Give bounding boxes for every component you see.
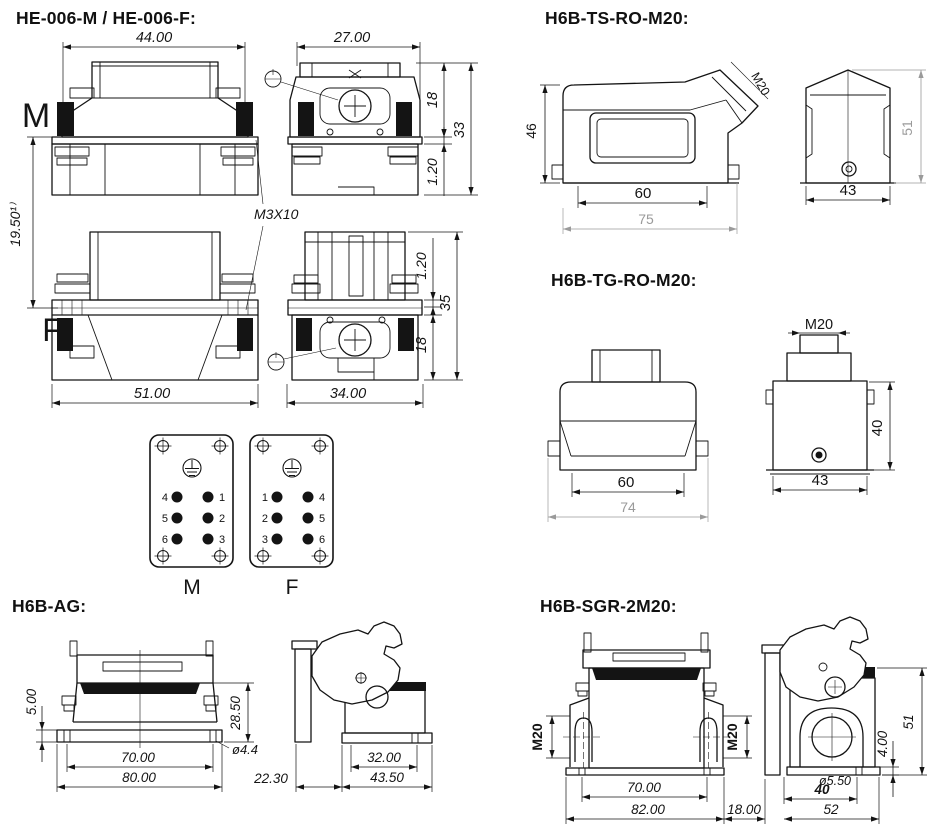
- pin-contact: [203, 534, 214, 545]
- dim-arrow: [882, 197, 890, 202]
- foot-right: [728, 165, 739, 179]
- screw-boss: [842, 162, 856, 176]
- dim-arrow: [700, 514, 708, 519]
- dim-arrow: [39, 722, 44, 730]
- dim-arrow: [454, 232, 459, 240]
- dim-w51: 51.00: [52, 384, 258, 408]
- screw-hole: [816, 452, 823, 459]
- m20-stub: [800, 335, 838, 353]
- body-legs: [88, 315, 222, 380]
- label-2: 3: [262, 534, 268, 546]
- dim-arrow: [744, 716, 749, 724]
- target-cross: [212, 548, 229, 565]
- label-h18_bot: 18: [414, 337, 430, 353]
- he006-m-side-view: [265, 63, 422, 195]
- side-screws: [576, 683, 716, 696]
- top-cap: [300, 63, 400, 77]
- dim-w70: 70.00: [582, 777, 707, 802]
- dim-arrow: [441, 63, 446, 71]
- base-holes: [856, 767, 862, 775]
- target-cross: [255, 548, 272, 565]
- hood-outline: [563, 70, 758, 183]
- dim-arrow: [351, 764, 359, 769]
- label-dia44: ø4.4: [232, 742, 258, 757]
- dim-arrow: [578, 200, 586, 205]
- label-h5: 5.00: [24, 688, 39, 715]
- label-0: 1: [219, 492, 225, 504]
- top-pins: [584, 633, 708, 652]
- dim-h18_top: 18: [416, 63, 478, 137]
- dim-arrow: [582, 794, 590, 799]
- flange: [342, 733, 432, 743]
- hood-inner: [98, 232, 212, 300]
- dim-arrow: [744, 750, 749, 758]
- dim-arrow: [676, 489, 684, 494]
- label-h51: 51: [899, 120, 915, 136]
- label-m20_right: M20: [724, 723, 740, 750]
- base-flange: [566, 768, 724, 775]
- pin-contact: [172, 513, 183, 524]
- top-pins: [70, 641, 213, 656]
- label-v1950: 19.50¹⁾: [7, 202, 23, 247]
- screw-slot: [344, 95, 366, 117]
- dim-arrow: [890, 775, 895, 783]
- label-h40: 40: [869, 420, 886, 437]
- dim-h40: 40: [869, 382, 895, 470]
- ground-symbol-icon: [183, 459, 201, 477]
- dim-arrow: [30, 137, 35, 145]
- dim-arrow: [250, 400, 258, 405]
- dim-arrow: [412, 44, 420, 49]
- dim-arrow: [454, 372, 459, 380]
- dim-w43: 43: [806, 182, 890, 205]
- dim-arrow: [542, 85, 547, 93]
- label-1: 2: [262, 513, 268, 525]
- dim-arrow: [441, 144, 446, 152]
- m3x10-leader-lower: [246, 226, 263, 310]
- dim-arrow: [237, 44, 245, 49]
- dim-arrow: [214, 784, 222, 789]
- side-tab-left: [70, 88, 94, 98]
- dim-arrow: [784, 796, 792, 801]
- threaded-stud-left: [298, 102, 314, 136]
- target-cross: [155, 548, 172, 565]
- dim-arrow: [887, 462, 892, 470]
- dim-arrow: [245, 683, 250, 691]
- label-w74: 74: [620, 499, 636, 515]
- ts-side-view: [552, 70, 758, 183]
- sgr-side-view: [762, 617, 880, 775]
- rivet-right: [377, 129, 383, 135]
- pin-contact: [203, 513, 214, 524]
- lower-block: [338, 358, 374, 380]
- dim-h5: 5.00: [24, 688, 59, 762]
- label-h120_top: 1.20: [424, 158, 440, 185]
- top-body: [77, 655, 213, 683]
- dim-arrow: [409, 764, 417, 769]
- label-h51: 51: [901, 714, 916, 729]
- pin-contact: [203, 492, 214, 503]
- dim-h46: 46: [523, 85, 560, 183]
- pin-contact: [303, 492, 314, 503]
- dim-arrow: [296, 784, 304, 789]
- foot-left: [552, 165, 563, 179]
- label-view_label_m: M: [22, 97, 50, 135]
- flange: [57, 730, 222, 742]
- dim-arrow: [716, 816, 724, 821]
- window-inner: [597, 119, 688, 157]
- flange: [288, 137, 422, 144]
- pin-contact: [272, 513, 283, 524]
- foot-left: [548, 441, 560, 456]
- dim-arrow: [724, 816, 732, 821]
- collar: [787, 353, 851, 381]
- ag-front-view: [57, 641, 222, 748]
- side-tab-left: [70, 346, 94, 358]
- label-h46: 46: [523, 123, 539, 139]
- leader-lines: [216, 62, 768, 748]
- screw-heads: [55, 274, 255, 293]
- ground-glyph: [285, 460, 299, 476]
- ground-leader-m: [281, 82, 338, 100]
- side-tab-right: [216, 346, 240, 358]
- gasket: [80, 683, 200, 694]
- dim-arrow: [784, 816, 792, 821]
- corner-target-icon: [212, 548, 229, 565]
- dim-arrow: [549, 716, 554, 724]
- label-w70: 70.00: [121, 750, 155, 765]
- dim-w60: 60: [572, 473, 684, 497]
- technical-drawing-svg: 44.0027.0018331.2019.50¹⁾51.0034.001.203…: [0, 0, 943, 839]
- flange: [288, 300, 422, 315]
- body-outline: [560, 382, 696, 470]
- corner-target-icon: [312, 438, 329, 455]
- threaded-stud-left: [57, 102, 74, 136]
- ground-symbol-icon: [283, 459, 301, 477]
- body-lower: [52, 144, 258, 195]
- foot-right: [696, 441, 708, 456]
- dim-arrow: [729, 226, 737, 231]
- ground-screw-slot: [268, 352, 284, 362]
- dim-arrow: [890, 759, 895, 767]
- dim-arrow: [542, 175, 547, 183]
- dim-arrow: [859, 487, 867, 492]
- dim-arrow: [699, 200, 707, 205]
- dim-arrow: [441, 129, 446, 137]
- label-w70: 70.00: [627, 780, 661, 795]
- pin-contact: [272, 492, 283, 503]
- target-cross: [312, 548, 329, 565]
- label-w52: 52: [823, 802, 839, 817]
- label-2: 3: [219, 534, 225, 546]
- stub-inner: [600, 350, 652, 382]
- dim-arrow: [572, 489, 580, 494]
- label-w435: 43.50: [370, 770, 404, 785]
- label-h285: 28.50: [228, 696, 243, 731]
- label-w60: 60: [635, 185, 652, 202]
- body-ribs: [70, 144, 235, 195]
- dim-thread: M20: [788, 317, 850, 350]
- post-cap: [292, 641, 317, 649]
- he006-m-front-view: [52, 62, 258, 195]
- label-h18_top: 18: [425, 92, 441, 108]
- label-w60: 60: [618, 474, 635, 491]
- dim-arrow: [919, 668, 924, 676]
- dim-arrow: [468, 63, 473, 71]
- dim-arrow: [415, 400, 423, 405]
- pin-contact: [303, 534, 314, 545]
- flange-ribs: [52, 300, 258, 315]
- bottom-notch: [338, 187, 374, 195]
- dim-arrow: [806, 197, 814, 202]
- dim-arrow: [887, 382, 892, 390]
- label-h4: 4.00: [875, 730, 890, 757]
- hole-crosshair: [808, 713, 856, 761]
- dim-arrow: [773, 487, 781, 492]
- label-f_label: F: [286, 576, 299, 599]
- dim-w70: 70.00: [67, 744, 213, 772]
- locking-lever: [312, 622, 402, 704]
- dim-m20_right: M20: [723, 716, 752, 758]
- dim-arrow: [757, 816, 765, 821]
- label-m_label: M: [183, 576, 201, 599]
- dim-arrow: [342, 784, 350, 789]
- label-1: 5: [162, 513, 168, 525]
- label-w51: 51.00: [134, 386, 170, 402]
- top-stub: [592, 350, 660, 382]
- label-gap18: 18.00: [727, 802, 761, 817]
- dim-arrow: [67, 764, 75, 769]
- threaded-stud-right: [236, 102, 253, 136]
- corner-target-icon: [312, 548, 329, 565]
- label-w2230: 22.30: [253, 771, 288, 786]
- dim-arrow: [918, 175, 923, 183]
- top-inner: [103, 662, 182, 671]
- dim-arrow: [549, 750, 554, 758]
- dim-arrow: [205, 764, 213, 769]
- dim-w34: 34.00: [287, 384, 423, 408]
- label-0: 1: [262, 492, 268, 504]
- gasket: [592, 668, 701, 680]
- label-w80: 80.00: [122, 770, 156, 785]
- dim-h4: 4.00: [875, 730, 899, 797]
- locking-lever: [780, 617, 868, 701]
- dim-w2230: 22.30: [253, 744, 342, 792]
- label-thread: M3X10: [254, 206, 299, 222]
- hood-outline: [90, 232, 220, 300]
- label-h33: 33: [452, 122, 468, 138]
- body: [589, 668, 704, 768]
- label-w44: 44.00: [136, 30, 172, 46]
- center-slot: [349, 236, 363, 296]
- window-outer: [590, 113, 695, 163]
- dim-arrow: [430, 307, 435, 315]
- dim-arrow: [57, 784, 65, 789]
- dim-h120_top: 1.20: [424, 127, 452, 196]
- tg-end-view: [766, 335, 874, 474]
- m20-domes: [575, 718, 717, 762]
- hood-outline: [62, 62, 248, 137]
- label-1: 2: [219, 513, 225, 525]
- label-2: 6: [319, 534, 325, 546]
- screw-heads: [292, 275, 418, 293]
- ag-side-view: [292, 622, 432, 743]
- label-w43: 43: [840, 182, 857, 199]
- drawing-sheet: { "sections": { "he006": { "title": "HE-…: [0, 0, 943, 839]
- label-w34: 34.00: [330, 386, 366, 402]
- dim-arrow: [430, 315, 435, 323]
- base-holes: [579, 768, 710, 775]
- dim-w60: 60: [578, 185, 707, 208]
- dim-arrow: [52, 400, 60, 405]
- threaded-stud-right: [398, 318, 414, 351]
- dim-arrow: [297, 44, 305, 49]
- dim-arrow: [838, 330, 846, 335]
- dim-arrow: [699, 794, 707, 799]
- dim-arrow: [30, 300, 35, 308]
- flange: [52, 300, 258, 315]
- pin-contact: [172, 492, 183, 503]
- ground-screw-slot: [265, 69, 281, 79]
- ground-glyph: [185, 460, 199, 476]
- dim-arrow: [39, 742, 44, 750]
- label-w32: 32.00: [367, 750, 401, 765]
- corner-target-icon: [155, 438, 172, 455]
- label-view_label_f: F: [42, 312, 62, 348]
- target-cross: [312, 438, 329, 455]
- pin-contact: [272, 534, 283, 545]
- label-w27: 27.00: [333, 30, 370, 46]
- side-tab-right: [216, 88, 240, 98]
- dim-arrow: [871, 816, 879, 821]
- rivet-left: [327, 129, 333, 135]
- pin-contact: [172, 534, 183, 545]
- screw-slot: [344, 329, 366, 351]
- dim-arrow: [566, 816, 574, 821]
- hood-inner-lines: [92, 62, 218, 98]
- screw-heads: [292, 147, 418, 164]
- tg-front-view: [548, 350, 708, 470]
- ear-right: [867, 390, 874, 404]
- dome-centerlines: [563, 712, 730, 768]
- label-h35: 35: [438, 294, 454, 311]
- dim-arrow: [424, 784, 432, 789]
- sgr-front-view: [563, 633, 730, 775]
- label-w82: 82.00: [631, 802, 665, 817]
- corner-target-icon: [255, 548, 272, 565]
- dim-arrow: [918, 70, 923, 78]
- label-w43: 43: [812, 472, 829, 489]
- body-outline: [52, 315, 258, 380]
- label-0: 4: [162, 492, 168, 504]
- corner-target-icon: [255, 438, 272, 455]
- screw-heads: [55, 147, 255, 165]
- window-lines: [560, 421, 696, 456]
- dim-arrow: [287, 400, 295, 405]
- dim-arrow: [245, 734, 250, 742]
- dim-arrow: [563, 226, 571, 231]
- mount-post: [765, 653, 780, 775]
- threaded-stud-right: [396, 102, 412, 136]
- dim-arrow: [468, 187, 473, 195]
- mount-holes: [412, 733, 418, 743]
- dim-arrow: [548, 514, 556, 519]
- dim-h51: 51: [877, 668, 927, 775]
- target-cross: [155, 438, 172, 455]
- corner-target-icon: [212, 438, 229, 455]
- label-thread: M20: [748, 70, 772, 98]
- ear-left: [766, 390, 773, 404]
- threaded-stud-right: [237, 318, 253, 351]
- mount-post: [295, 649, 311, 742]
- cap-inner: [613, 653, 685, 661]
- dim-arrow: [334, 784, 342, 789]
- dim-arrow: [919, 767, 924, 775]
- dim-arrow: [430, 292, 435, 300]
- label-m20_left: M20: [529, 723, 545, 750]
- top-cap-inner: [312, 63, 388, 77]
- dim-w43: 43: [773, 472, 867, 495]
- dim-arrow: [430, 372, 435, 380]
- ts-end-view: [800, 70, 896, 183]
- target-cross: [255, 438, 272, 455]
- flange: [52, 137, 258, 144]
- dim-v1950: 19.50¹⁾: [7, 137, 58, 308]
- label-0: 4: [319, 492, 325, 504]
- label-1: 5: [319, 513, 325, 525]
- label-thread: M20: [805, 317, 833, 333]
- dim-gap18: 18.00: [724, 779, 765, 824]
- dim-arrow: [63, 44, 71, 49]
- target-cross: [212, 438, 229, 455]
- label-2: 6: [162, 534, 168, 546]
- corner-target-icon: [155, 548, 172, 565]
- he006-f-front-view: [52, 232, 258, 380]
- pin-contact: [303, 513, 314, 524]
- dim-arrow: [849, 796, 857, 801]
- threaded-stud-left: [296, 318, 312, 351]
- dim-arrow: [792, 330, 800, 335]
- label-w75: 75: [638, 211, 654, 227]
- label-h120_bot: 1.20: [413, 252, 429, 279]
- label-dia550: ø5.50: [819, 774, 851, 788]
- screw-hole: [846, 166, 852, 172]
- dim-w32: 32.00: [351, 745, 417, 772]
